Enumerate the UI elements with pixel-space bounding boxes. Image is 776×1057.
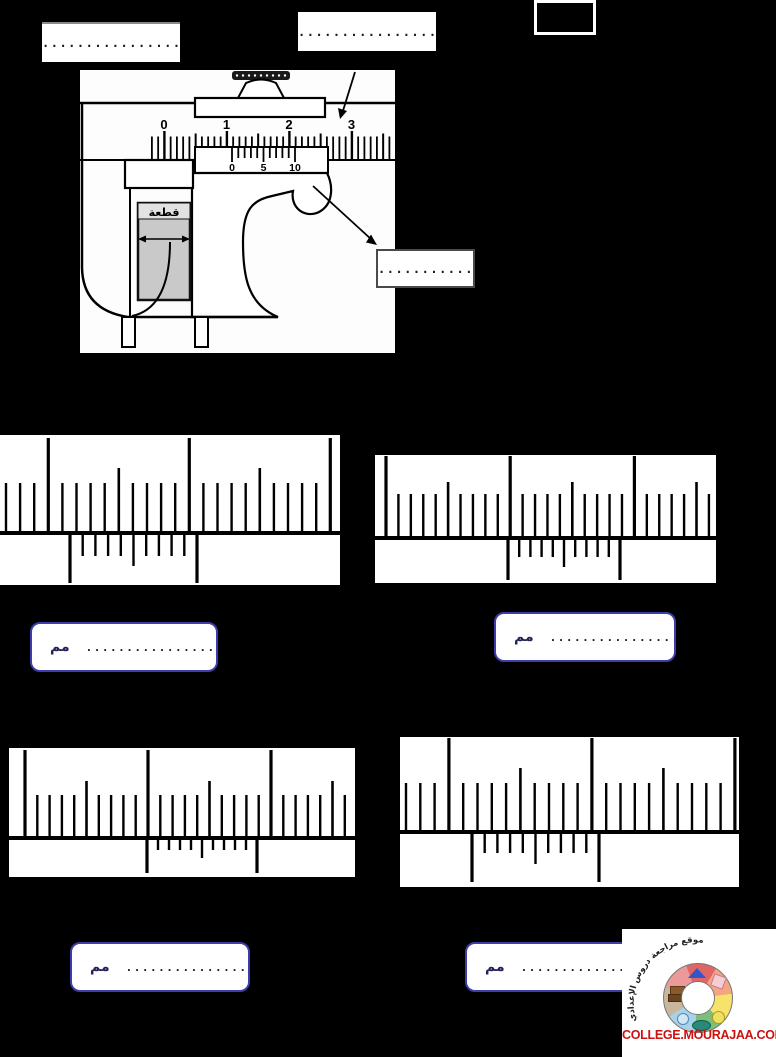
main-scale-number: 2 <box>285 117 292 132</box>
slider-clamp <box>195 98 325 117</box>
score-box[interactable] <box>534 0 596 35</box>
vernier-exercise-2-answer-box[interactable]: مم.............................. <box>494 612 676 662</box>
left-foot <box>122 317 135 347</box>
mm-unit-label: مم <box>485 959 505 975</box>
vernier-exercise-1-answer-box[interactable]: مم................................. <box>30 622 218 672</box>
vernier-exercise-1 <box>0 435 340 585</box>
logo-ring-hole <box>681 981 715 1015</box>
vernier-exercise-4-answer-box[interactable]: مم................................. <box>465 942 648 992</box>
mm-unit-label: مم <box>90 959 110 975</box>
vernier-exercise-3 <box>9 748 355 877</box>
main-scale-line <box>375 536 716 540</box>
dotted-line: ............................ <box>42 37 180 49</box>
caliper-figure: 01230510قطعة <box>80 70 395 353</box>
label-box-vernier[interactable]: ................ <box>376 249 475 288</box>
mm-unit-label: مم <box>514 629 534 645</box>
main-scale-number: 0 <box>160 117 167 132</box>
graduation-cap-icon <box>688 968 706 978</box>
vernier-exercise-3-figure <box>9 748 355 877</box>
piece-label: قطعة <box>149 206 180 219</box>
label-box-top-left[interactable]: ............................ <box>42 22 180 62</box>
dotted-line: ................ <box>378 263 473 275</box>
site-logo: موقع مراجعة دروس الإعدادي COLLEGE.MOURAJ… <box>622 929 776 1057</box>
dotted-answer-line: ................................. <box>86 642 216 653</box>
caliper-svg: 01230510قطعة <box>80 70 395 353</box>
main-scale-line <box>400 830 739 834</box>
vernier-exercise-2 <box>375 455 716 583</box>
label-box-main-scale[interactable]: ........................... <box>298 12 436 51</box>
flask-icon <box>677 1013 689 1025</box>
site-url[interactable]: COLLEGE.MOURAJAA.COM <box>622 1028 776 1043</box>
vernier-exercise-2-figure <box>375 455 716 583</box>
vernier-exercise-1-figure <box>0 435 340 585</box>
vernier-exercise-3-answer-box[interactable]: مم........................ <box>70 942 250 992</box>
atom-icon <box>712 1011 725 1024</box>
fixed-jaw-head <box>125 160 193 188</box>
main-scale-number: 3 <box>348 117 355 132</box>
vernier-exercise-4 <box>400 737 739 887</box>
right-foot <box>195 317 208 347</box>
dotted-line: ........................... <box>298 26 436 38</box>
main-scale-number: 1 <box>223 117 230 132</box>
dotted-answer-line: ........................ <box>126 962 248 973</box>
dotted-answer-line: .............................. <box>550 632 674 643</box>
vernier-exercise-4-figure <box>400 737 739 887</box>
mm-unit-label: مم <box>50 639 70 655</box>
worksheet-page: { "page": {"background": "#000000"}, "to… <box>0 0 776 1057</box>
